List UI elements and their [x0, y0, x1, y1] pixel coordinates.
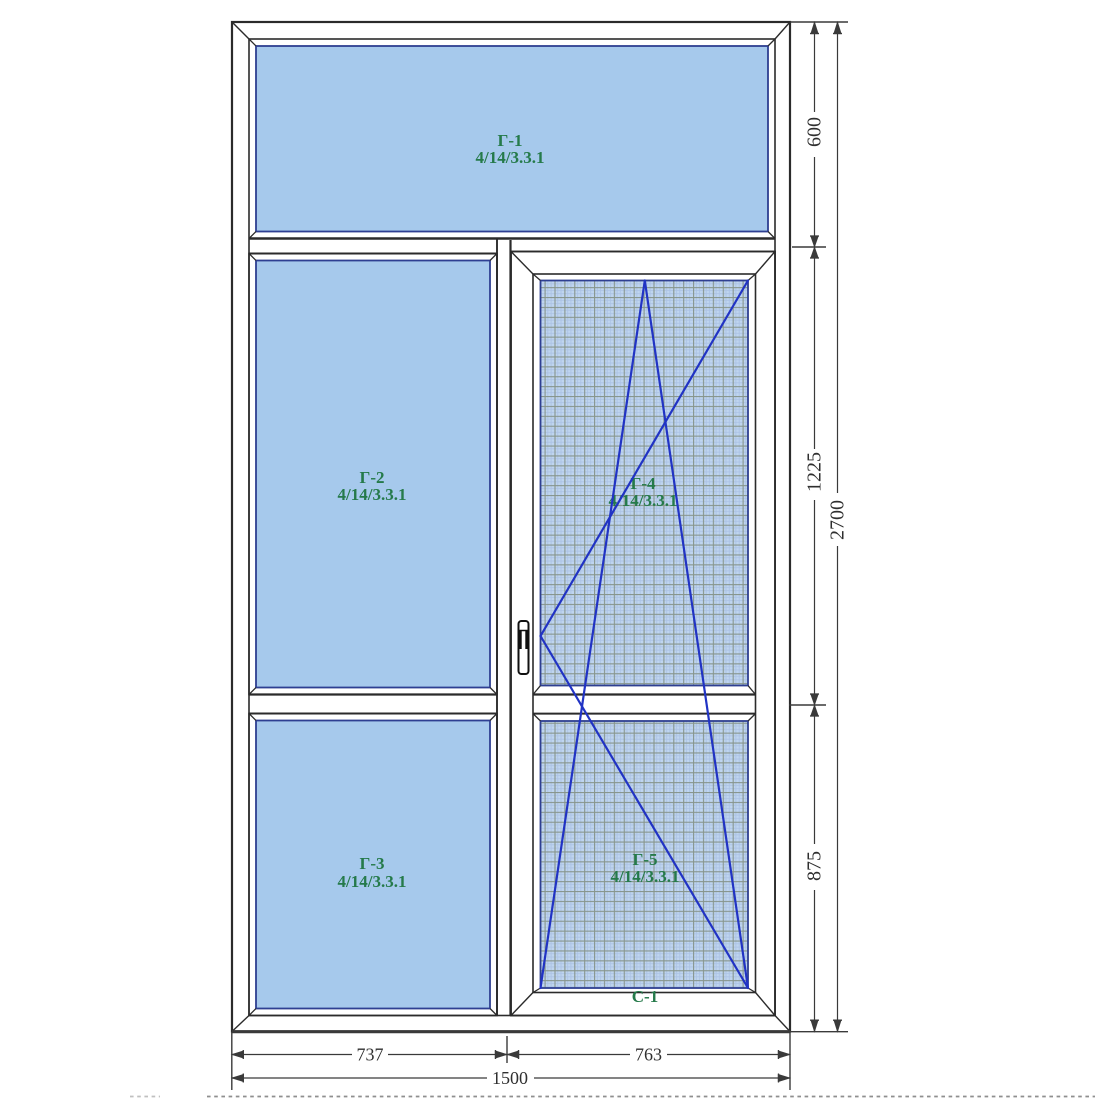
svg-text:4/14/3.3.1: 4/14/3.3.1	[476, 148, 545, 167]
svg-text:4/14/3.3.1: 4/14/3.3.1	[338, 485, 407, 504]
svg-text:2700: 2700	[827, 500, 849, 540]
svg-text:600: 600	[804, 117, 826, 147]
svg-text:1225: 1225	[804, 452, 826, 492]
svg-text:Г-3: Г-3	[360, 854, 385, 873]
svg-text:С-1: С-1	[632, 987, 658, 1006]
svg-text:875: 875	[804, 851, 826, 881]
svg-text:737: 737	[357, 1045, 384, 1065]
svg-text:763: 763	[635, 1045, 662, 1065]
svg-text:1500: 1500	[492, 1068, 528, 1088]
svg-text:4/14/3.3.1: 4/14/3.3.1	[611, 867, 680, 886]
svg-text:4/14/3.3.1: 4/14/3.3.1	[338, 872, 407, 891]
